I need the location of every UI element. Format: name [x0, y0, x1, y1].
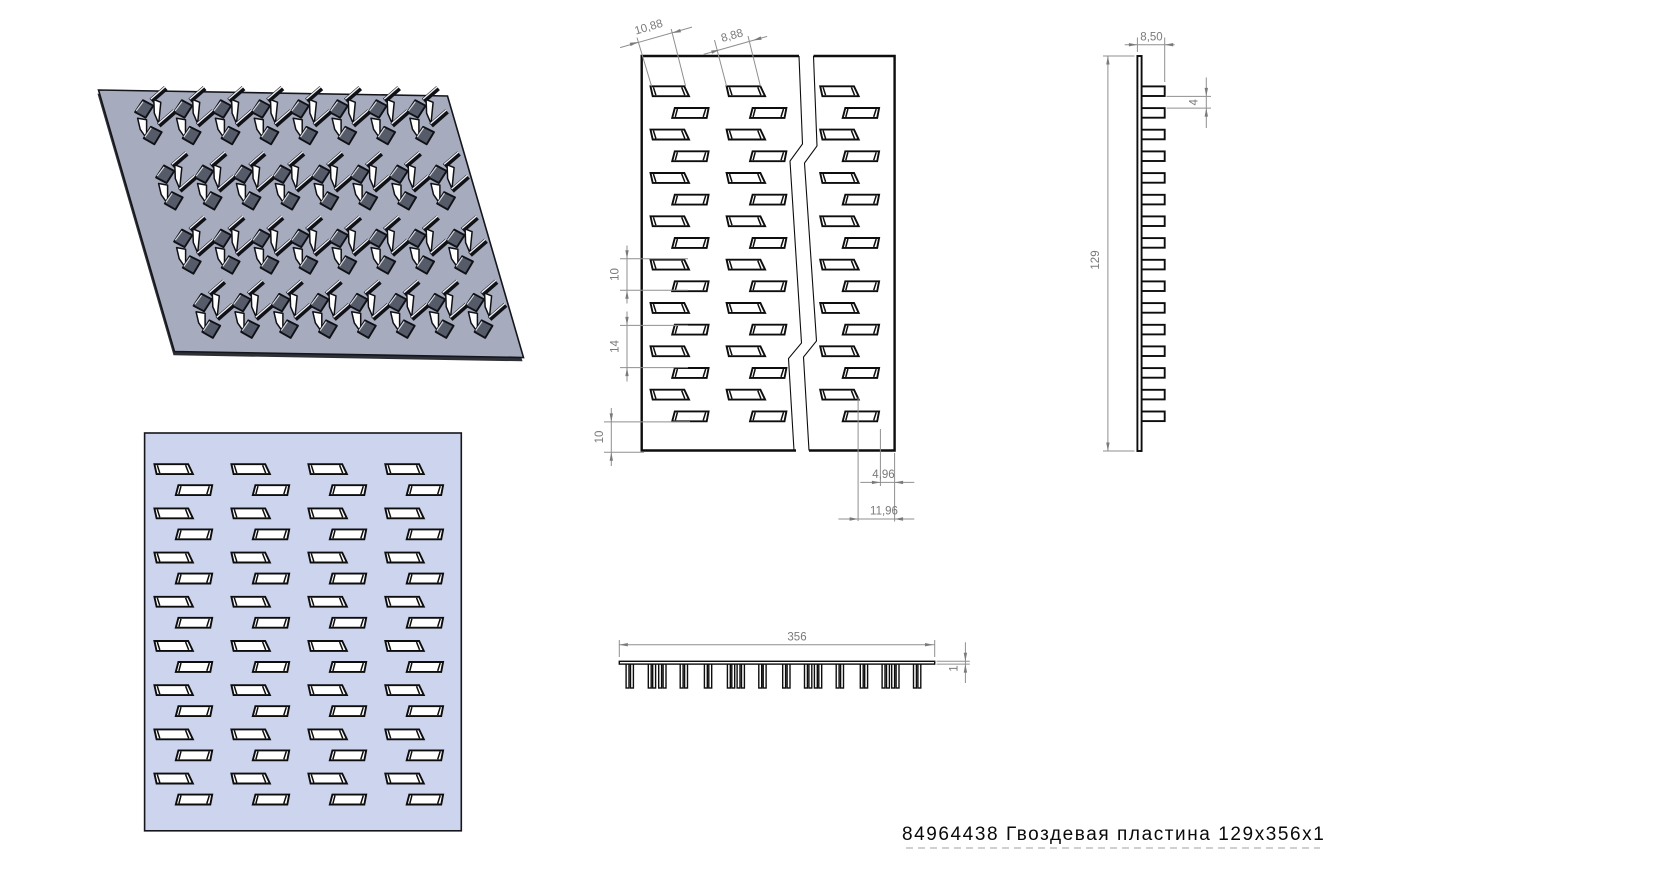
svg-text:84964438 Гвоздевая пластина 12: 84964438 Гвоздевая пластина 129x356x1 — [902, 824, 1325, 845]
svg-text:10: 10 — [610, 268, 622, 281]
svg-text:4,96: 4,96 — [872, 469, 894, 481]
svg-text:129: 129 — [1090, 250, 1102, 269]
svg-text:10: 10 — [594, 431, 606, 444]
svg-text:8,50: 8,50 — [1140, 32, 1162, 44]
svg-text:1: 1 — [949, 665, 961, 671]
svg-text:356: 356 — [787, 632, 806, 644]
svg-text:4: 4 — [1189, 99, 1201, 106]
svg-text:14: 14 — [610, 340, 622, 353]
svg-text:11,96: 11,96 — [870, 506, 898, 518]
